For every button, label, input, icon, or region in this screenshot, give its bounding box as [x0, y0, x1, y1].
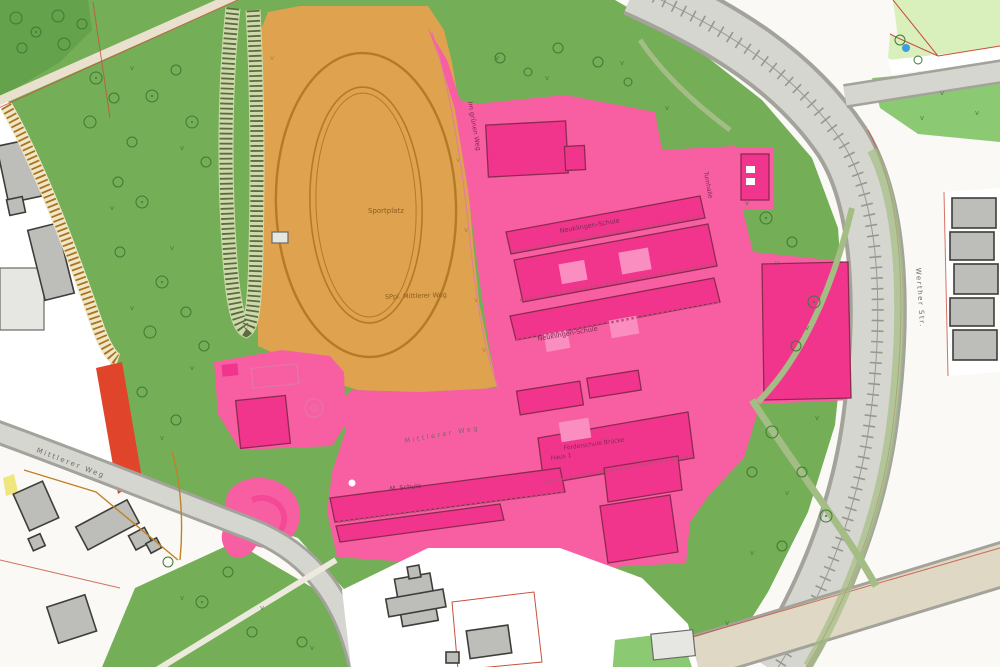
- building: [466, 625, 511, 659]
- svg-text:v: v: [545, 74, 549, 82]
- svg-text:v: v: [110, 204, 114, 212]
- annex-building: [236, 395, 291, 448]
- building: [953, 330, 997, 360]
- svg-text:v: v: [130, 64, 134, 72]
- label-sportplatz: Sportplatz: [368, 207, 404, 215]
- svg-text:v: v: [750, 549, 754, 557]
- svg-text:v: v: [745, 199, 749, 207]
- svg-text:v: v: [665, 104, 669, 112]
- svg-text:v: v: [495, 54, 499, 62]
- svg-text:v: v: [775, 259, 779, 267]
- building: [950, 232, 994, 260]
- building: [954, 264, 998, 294]
- svg-text:v: v: [482, 346, 486, 354]
- svg-text:v: v: [975, 109, 979, 117]
- building: [407, 565, 421, 579]
- svg-text:v: v: [180, 144, 184, 152]
- yard-dot: [349, 480, 356, 487]
- school-building: [486, 121, 569, 177]
- svg-text:v: v: [160, 434, 164, 442]
- field-hut: [272, 232, 288, 243]
- building: [446, 652, 459, 663]
- map-canvas[interactable]: vv vv vv: [0, 0, 1000, 667]
- building: [950, 298, 994, 326]
- building: [7, 197, 26, 216]
- svg-text:v: v: [310, 644, 314, 652]
- svg-text:v: v: [190, 364, 194, 372]
- pond-icon: [902, 44, 910, 52]
- school-building: [600, 495, 678, 563]
- svg-text:v: v: [130, 304, 134, 312]
- building: [952, 198, 996, 228]
- east-building-row: [944, 188, 1000, 376]
- building: [0, 268, 44, 330]
- gis-map: vv vv vv: [0, 0, 1000, 667]
- school-building: [564, 145, 585, 170]
- school-building: [741, 154, 769, 200]
- svg-text:v: v: [620, 59, 624, 67]
- svg-text:v: v: [940, 89, 944, 97]
- svg-text:v: v: [805, 324, 809, 332]
- svg-text:v: v: [170, 244, 174, 252]
- svg-text:v: v: [180, 594, 184, 602]
- svg-text:v: v: [920, 114, 924, 122]
- svg-text:v: v: [725, 619, 729, 627]
- building: [651, 630, 695, 660]
- svg-text:v: v: [270, 54, 274, 62]
- svg-text:v: v: [464, 226, 468, 234]
- svg-text:v: v: [260, 604, 264, 612]
- svg-text:v: v: [815, 414, 819, 422]
- svg-text:v: v: [785, 489, 789, 497]
